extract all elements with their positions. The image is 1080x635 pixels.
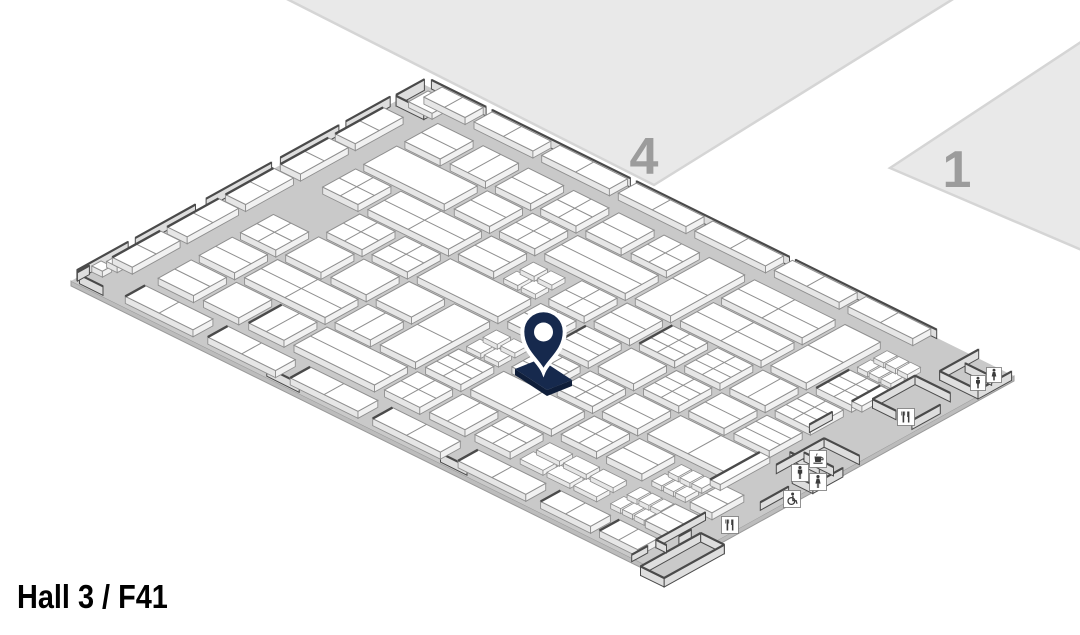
svg-text:1: 1: [943, 141, 972, 199]
svg-text:4: 4: [630, 128, 659, 186]
